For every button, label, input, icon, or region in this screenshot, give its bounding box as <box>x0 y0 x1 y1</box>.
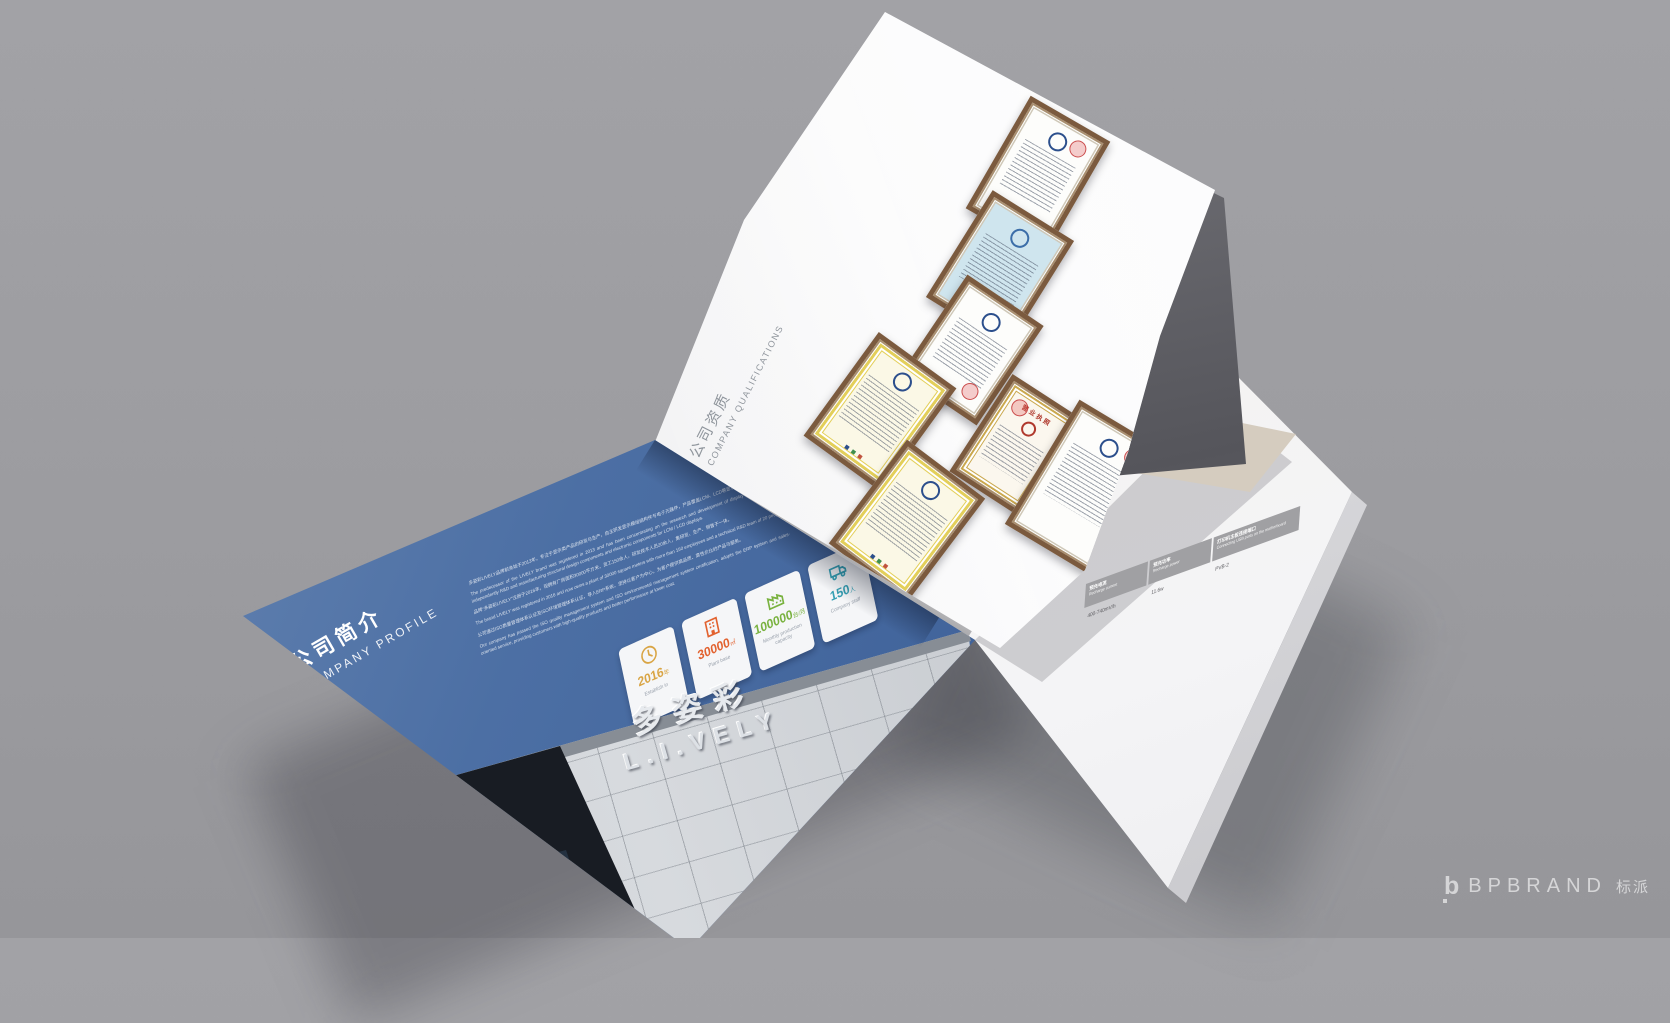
emblem-icon <box>1096 435 1122 461</box>
emblem-icon <box>1006 225 1032 251</box>
watermark-brand-text: BPBRAND <box>1468 875 1607 898</box>
profile-heading: 公司简介 COMPANY PROFILE <box>284 575 441 693</box>
watermark-brand-cn: 标派 <box>1616 876 1650 897</box>
stat-badge-capacity: 100000台/月 Monthly production capacity <box>744 569 815 671</box>
emblem-icon <box>1044 129 1070 155</box>
accreditation-marks-icon <box>876 559 882 565</box>
watermark: b BPBRAND 标派 <box>1444 874 1650 899</box>
emblem-icon <box>1018 418 1039 439</box>
accreditation-marks-icon <box>851 449 857 455</box>
bpbrand-logo-icon: b <box>1444 874 1459 899</box>
red-seal-icon <box>1066 137 1089 160</box>
